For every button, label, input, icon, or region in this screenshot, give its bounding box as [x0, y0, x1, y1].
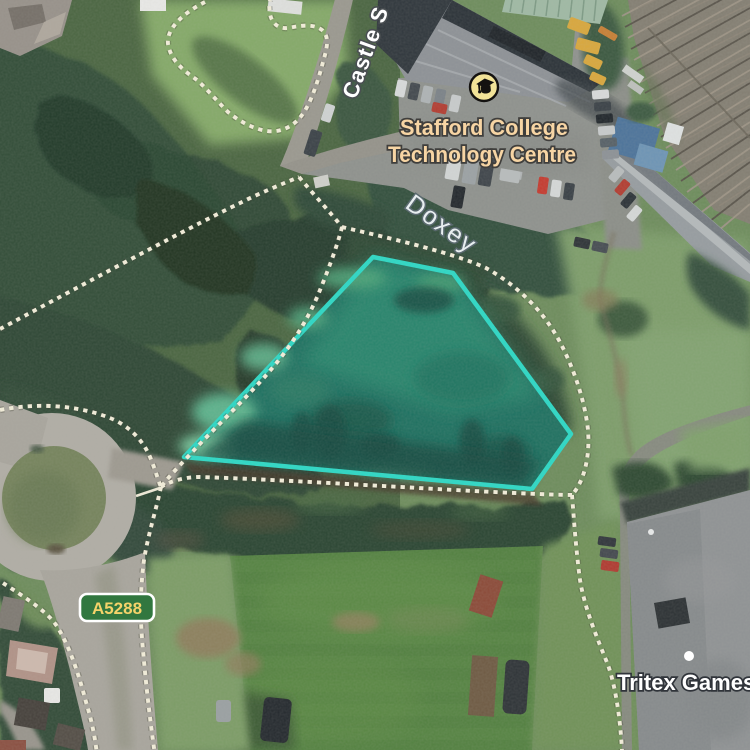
- svg-text:Technology Centre: Technology Centre: [388, 142, 576, 167]
- svg-text:A5288: A5288: [92, 599, 142, 618]
- svg-text:Stafford College: Stafford College: [400, 115, 568, 140]
- svg-text:Tritex Games: Tritex Games: [617, 670, 750, 695]
